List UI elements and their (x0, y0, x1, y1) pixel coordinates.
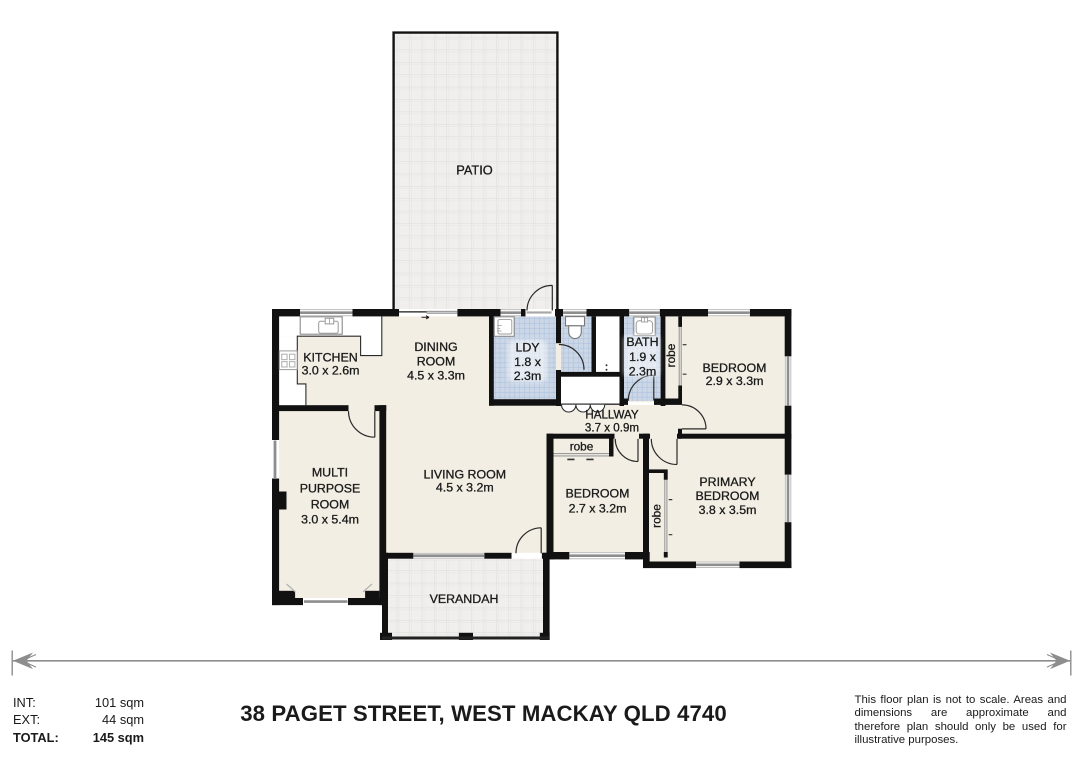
svg-text:4.5 x 3.2m: 4.5 x 3.2m (436, 481, 494, 495)
svg-text:PRIMARY: PRIMARY (699, 475, 755, 489)
svg-text:KITCHEN: KITCHEN (303, 351, 357, 365)
svg-text:ROOM: ROOM (417, 354, 456, 368)
svg-text:LIVING ROOM: LIVING ROOM (423, 468, 506, 482)
svg-text:LDY: LDY (515, 341, 539, 355)
svg-text:robe: robe (664, 343, 678, 367)
svg-text:PURPOSE: PURPOSE (300, 482, 361, 496)
svg-text:PATIO: PATIO (456, 163, 493, 178)
svg-text:3.8 x 3.5m: 3.8 x 3.5m (699, 503, 757, 517)
svg-text:BEDROOM: BEDROOM (702, 361, 766, 375)
svg-text:1.8 x: 1.8 x (514, 355, 542, 369)
svg-text:2.9 x 3.3m: 2.9 x 3.3m (706, 374, 764, 388)
svg-text:robe: robe (570, 440, 594, 454)
svg-text:DINING: DINING (414, 340, 457, 354)
svg-text:3.7 x 0.9m: 3.7 x 0.9m (585, 421, 639, 434)
svg-text:2.3m: 2.3m (629, 365, 657, 379)
svg-text:2.3m: 2.3m (514, 369, 542, 383)
svg-text:VERANDAH: VERANDAH (430, 592, 499, 606)
svg-text:BEDROOM: BEDROOM (565, 487, 629, 501)
svg-text:HALLWAY: HALLWAY (585, 408, 639, 421)
svg-text:2.7 x 3.2m: 2.7 x 3.2m (569, 502, 627, 516)
svg-text:BATH: BATH (626, 335, 658, 349)
svg-text:3.0 x 5.4m: 3.0 x 5.4m (301, 513, 359, 527)
svg-text:4.5 x 3.3m: 4.5 x 3.3m (407, 369, 465, 383)
svg-text:BEDROOM: BEDROOM (695, 489, 759, 503)
svg-text:ROOM: ROOM (311, 498, 350, 512)
svg-text:3.0 x 2.6m: 3.0 x 2.6m (302, 364, 360, 378)
svg-text:1.9 x: 1.9 x (629, 350, 657, 364)
svg-text:MULTI: MULTI (312, 466, 348, 480)
svg-text:robe: robe (650, 504, 664, 528)
